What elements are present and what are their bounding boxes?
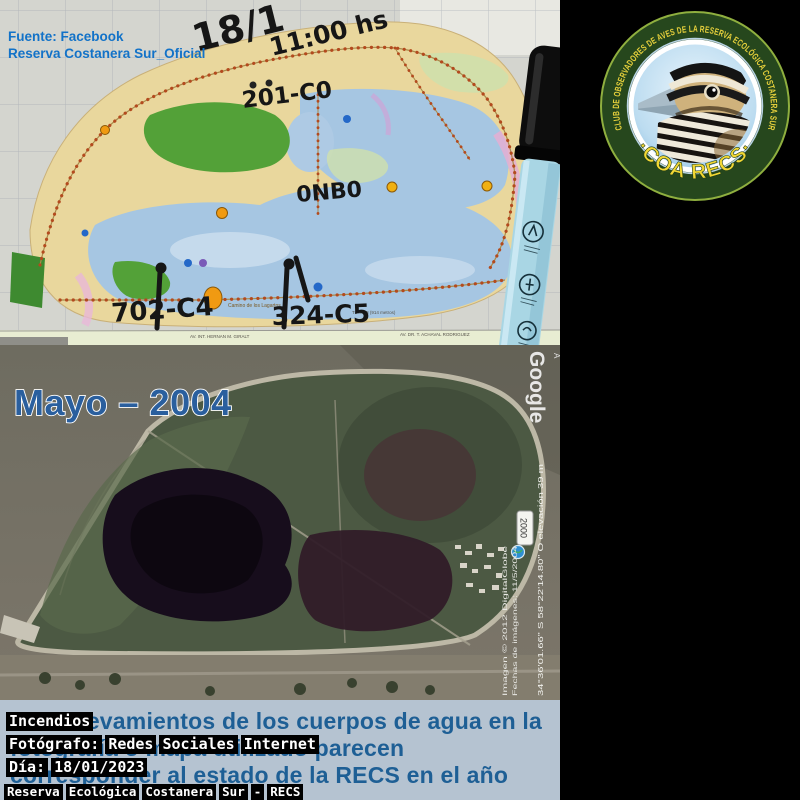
satellite-graphic: Mayo – 2004 Google A 2000 Imagen © 2012 …	[0, 345, 560, 700]
street-band	[0, 330, 560, 345]
pin-knob-2	[284, 259, 295, 270]
imagery-credit: Imagen © 2012 DigitalGlobe	[502, 545, 509, 696]
tag-date: Día:18/01/2023	[6, 758, 150, 777]
coa-recs-logo: CLUB DE OBSERVADORES DE AVES DE LA RESER…	[600, 11, 790, 201]
map-graphic: AV. INT. HERNAN M. GIRALT AV. DR. T. ACH…	[0, 0, 560, 345]
pin-knob-1	[156, 263, 167, 274]
logo-graphic: CLUB DE OBSERVADORES DE AVES DE LA RESER…	[600, 11, 790, 201]
tag-site: ReservaEcológicaCostaneraSur-RECS	[4, 784, 306, 800]
street-label-2: AV. DR. T. ACHAVAL RODRIGUEZ	[400, 332, 470, 337]
corner-letter: A	[552, 353, 560, 359]
tag-photographer: Fotógrafo:RedesSocialesInternet	[6, 735, 322, 754]
satellite-title: Mayo – 2004	[14, 382, 232, 423]
annotated-map-photo: AV. INT. HERNAN M. GIRALT AV. DR. T. ACH…	[0, 0, 560, 345]
google-watermark: Google	[525, 351, 548, 423]
maroon-patch	[298, 530, 452, 631]
right-lobe-maroon	[364, 429, 476, 521]
lagoon-glare-2	[365, 256, 475, 284]
status-bar-coordinates: 34°36'01.66" S 58°22'14.80" O elevación …	[536, 464, 545, 696]
street-label-1: AV. INT. HERNAN M. GIRALT	[190, 334, 250, 339]
timeline-year-chip[interactable]: 2000	[517, 511, 533, 545]
source-credit-line2: Reserva Costanera Sur_Oficial	[8, 46, 205, 61]
street-shadow	[0, 337, 68, 345]
bird-eye-highlight	[712, 88, 715, 91]
bird-eye	[707, 87, 718, 98]
satellite-photo: Mayo – 2004 Google A 2000 Imagen © 2012 …	[0, 345, 560, 700]
tag-event: Incendios	[6, 712, 96, 731]
timeline-year-text: 2000	[519, 518, 529, 538]
urban-strip	[0, 655, 560, 700]
forest-strip-left	[10, 252, 45, 308]
image-canvas: AV. INT. HERNAN M. GIRALT AV. DR. T. ACH…	[0, 0, 800, 800]
imagery-date: Fechas de imágenes: 11/5/2004	[513, 545, 519, 696]
small-lagoon	[286, 112, 334, 172]
source-credit-line1: Fuente: Facebook	[8, 29, 124, 44]
